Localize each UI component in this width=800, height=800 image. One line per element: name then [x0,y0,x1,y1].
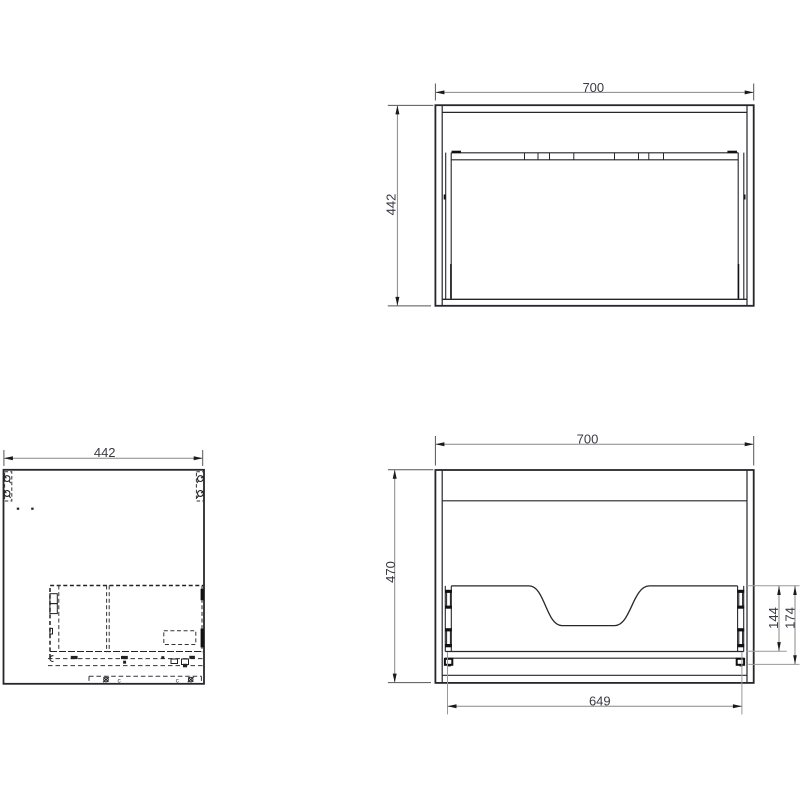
svg-text:442: 442 [384,194,399,216]
svg-text:700: 700 [577,432,599,447]
svg-text:174: 174 [782,607,797,629]
svg-text:144: 144 [766,607,781,629]
svg-text:700: 700 [582,80,604,95]
svg-text:470: 470 [383,561,398,583]
svg-text:649: 649 [589,694,611,709]
svg-text:442: 442 [94,445,116,460]
